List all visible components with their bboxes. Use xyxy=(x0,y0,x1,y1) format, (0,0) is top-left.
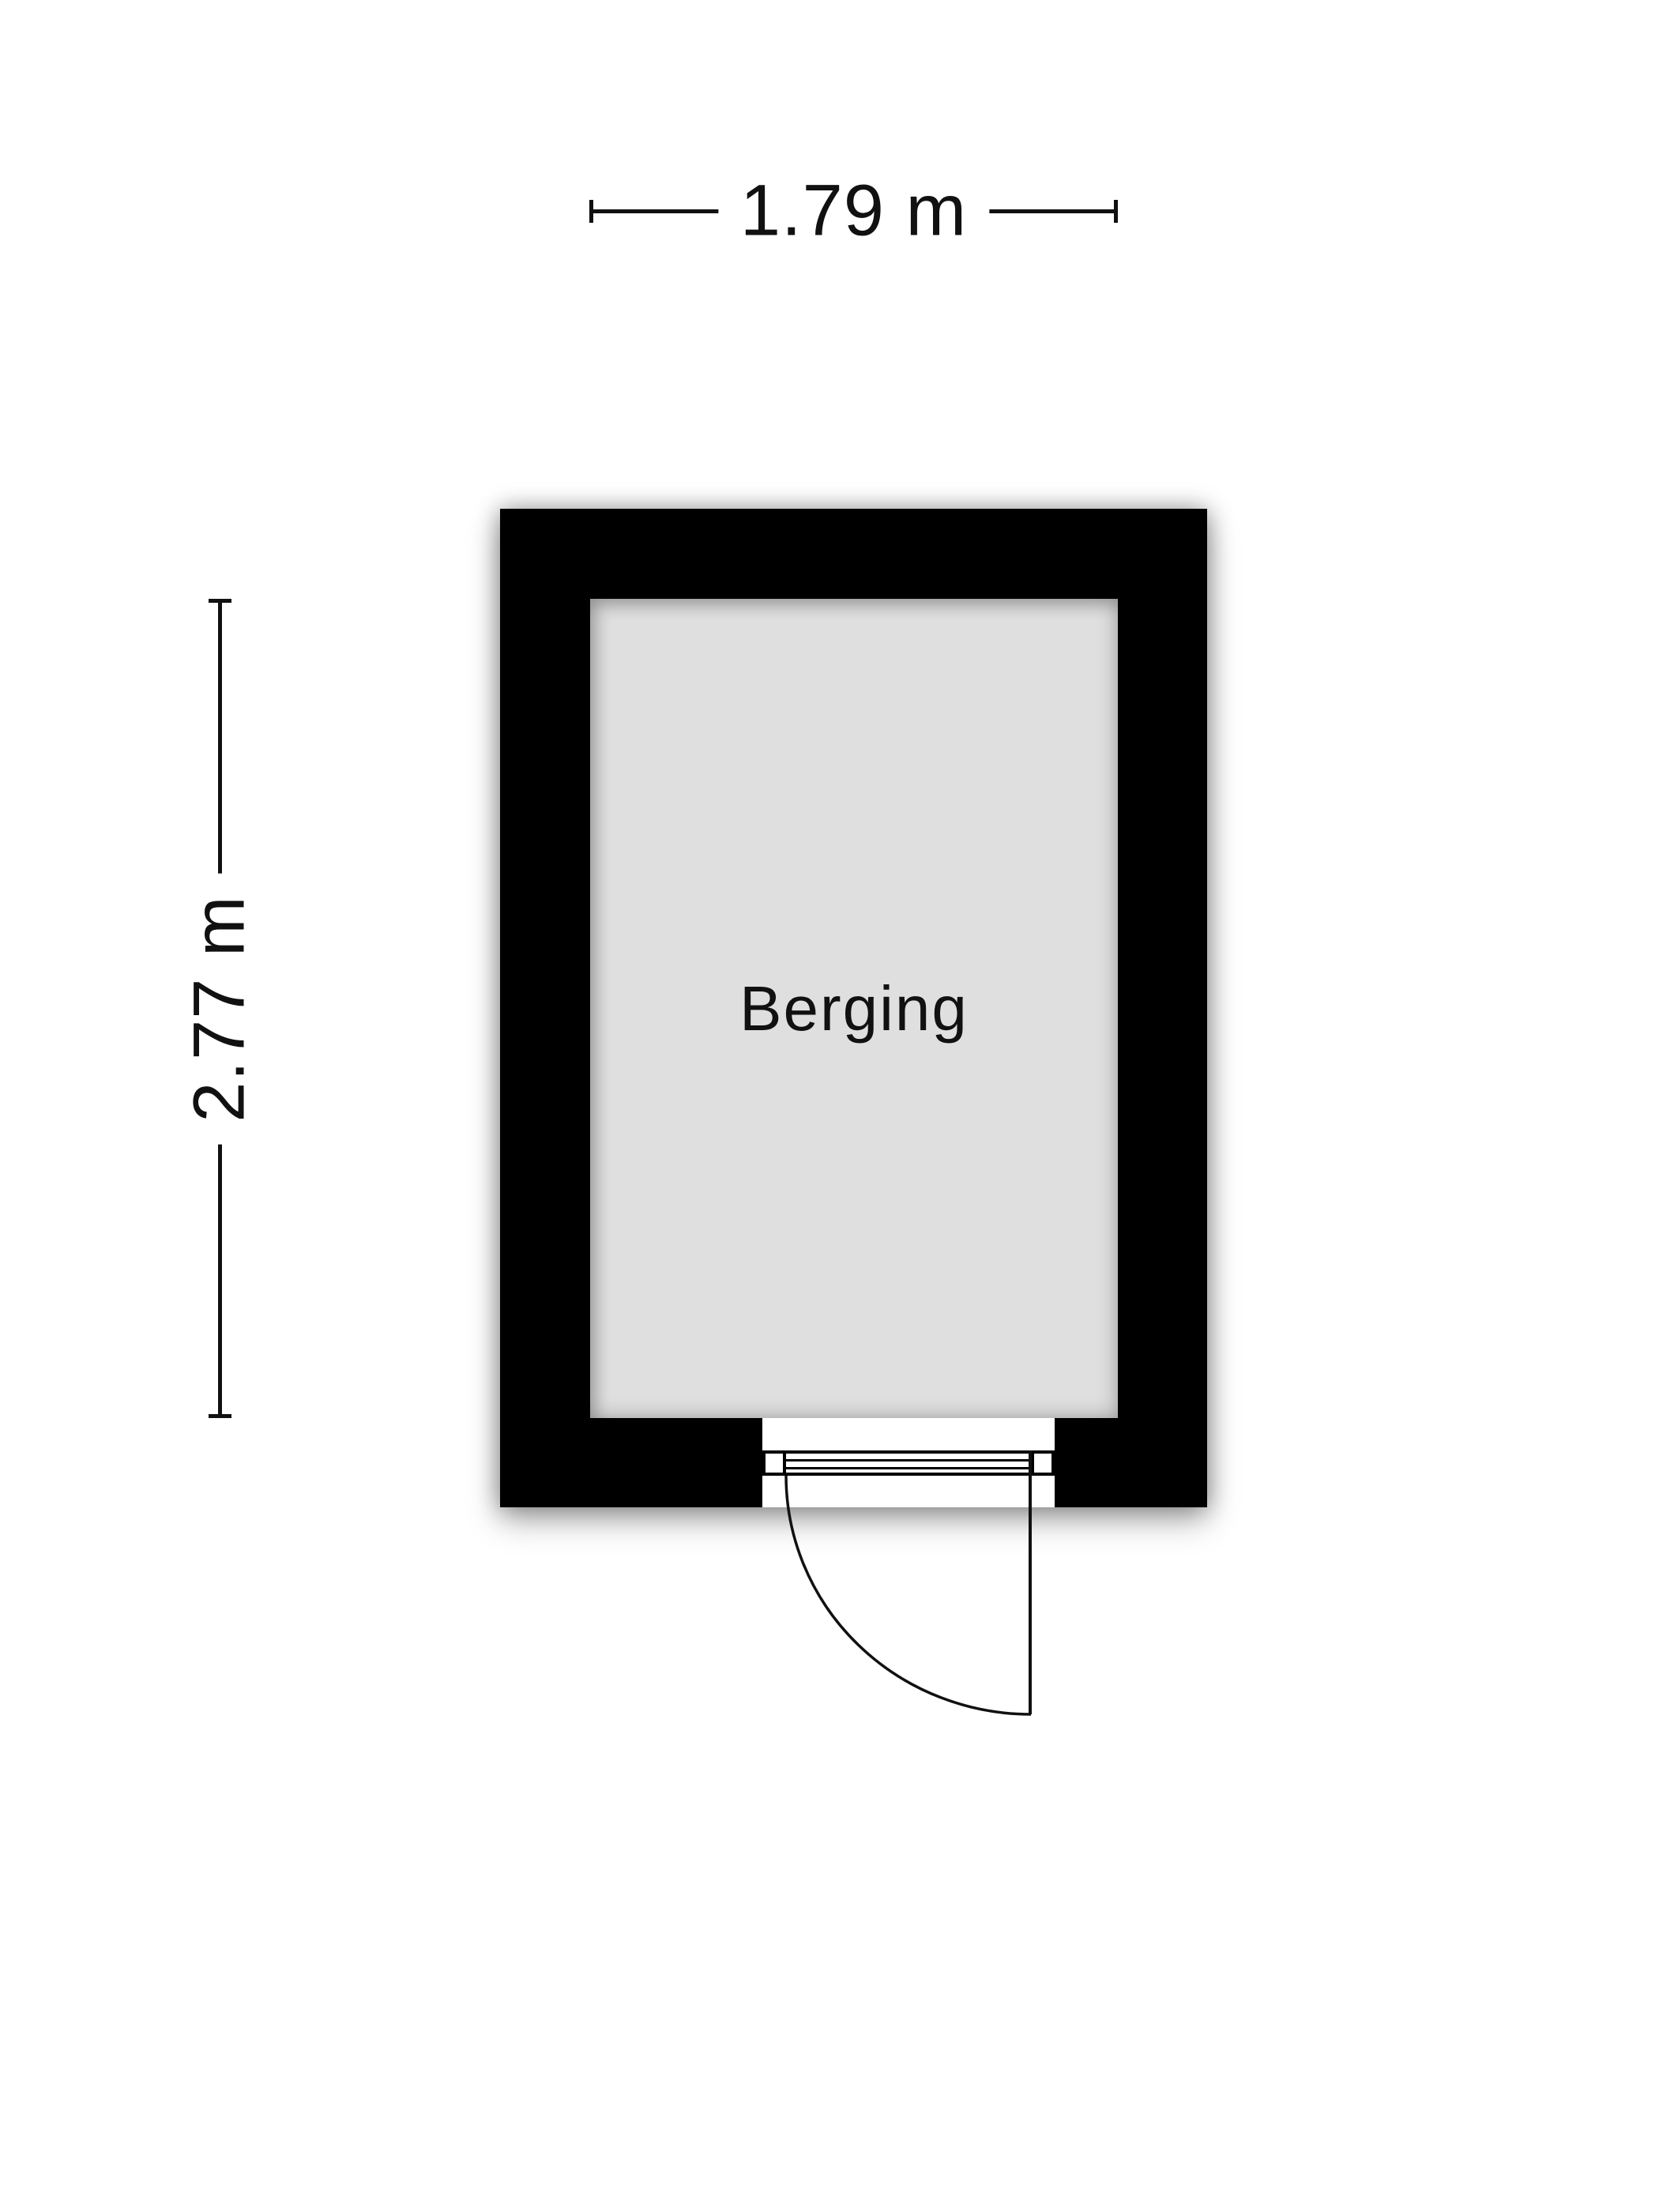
door-threshold-line xyxy=(786,1467,1031,1469)
dimension-width-tick-left xyxy=(589,200,593,223)
door-threshold-line xyxy=(786,1459,1031,1461)
floorplan-canvas: 1.79 m 2.77 m Berging xyxy=(0,0,1659,2212)
room-berging: Berging xyxy=(590,599,1118,1418)
room-label: Berging xyxy=(739,977,969,1040)
dimension-width-tick-right xyxy=(1114,200,1118,223)
door-swing-arc xyxy=(786,1476,1031,1714)
door-jamb-right xyxy=(1031,1450,1055,1476)
dimension-height-tick-bottom xyxy=(209,1414,231,1418)
dimension-height-tick-top xyxy=(209,599,231,603)
dimension-height-label: 2.77 m xyxy=(182,873,258,1144)
dimension-width-label: 1.79 m xyxy=(718,173,989,250)
dimension-height: 2.77 m xyxy=(199,599,240,1418)
door-threshold xyxy=(786,1450,1031,1476)
dimension-width: 1.79 m xyxy=(589,190,1118,231)
door-jamb-left xyxy=(762,1450,786,1476)
